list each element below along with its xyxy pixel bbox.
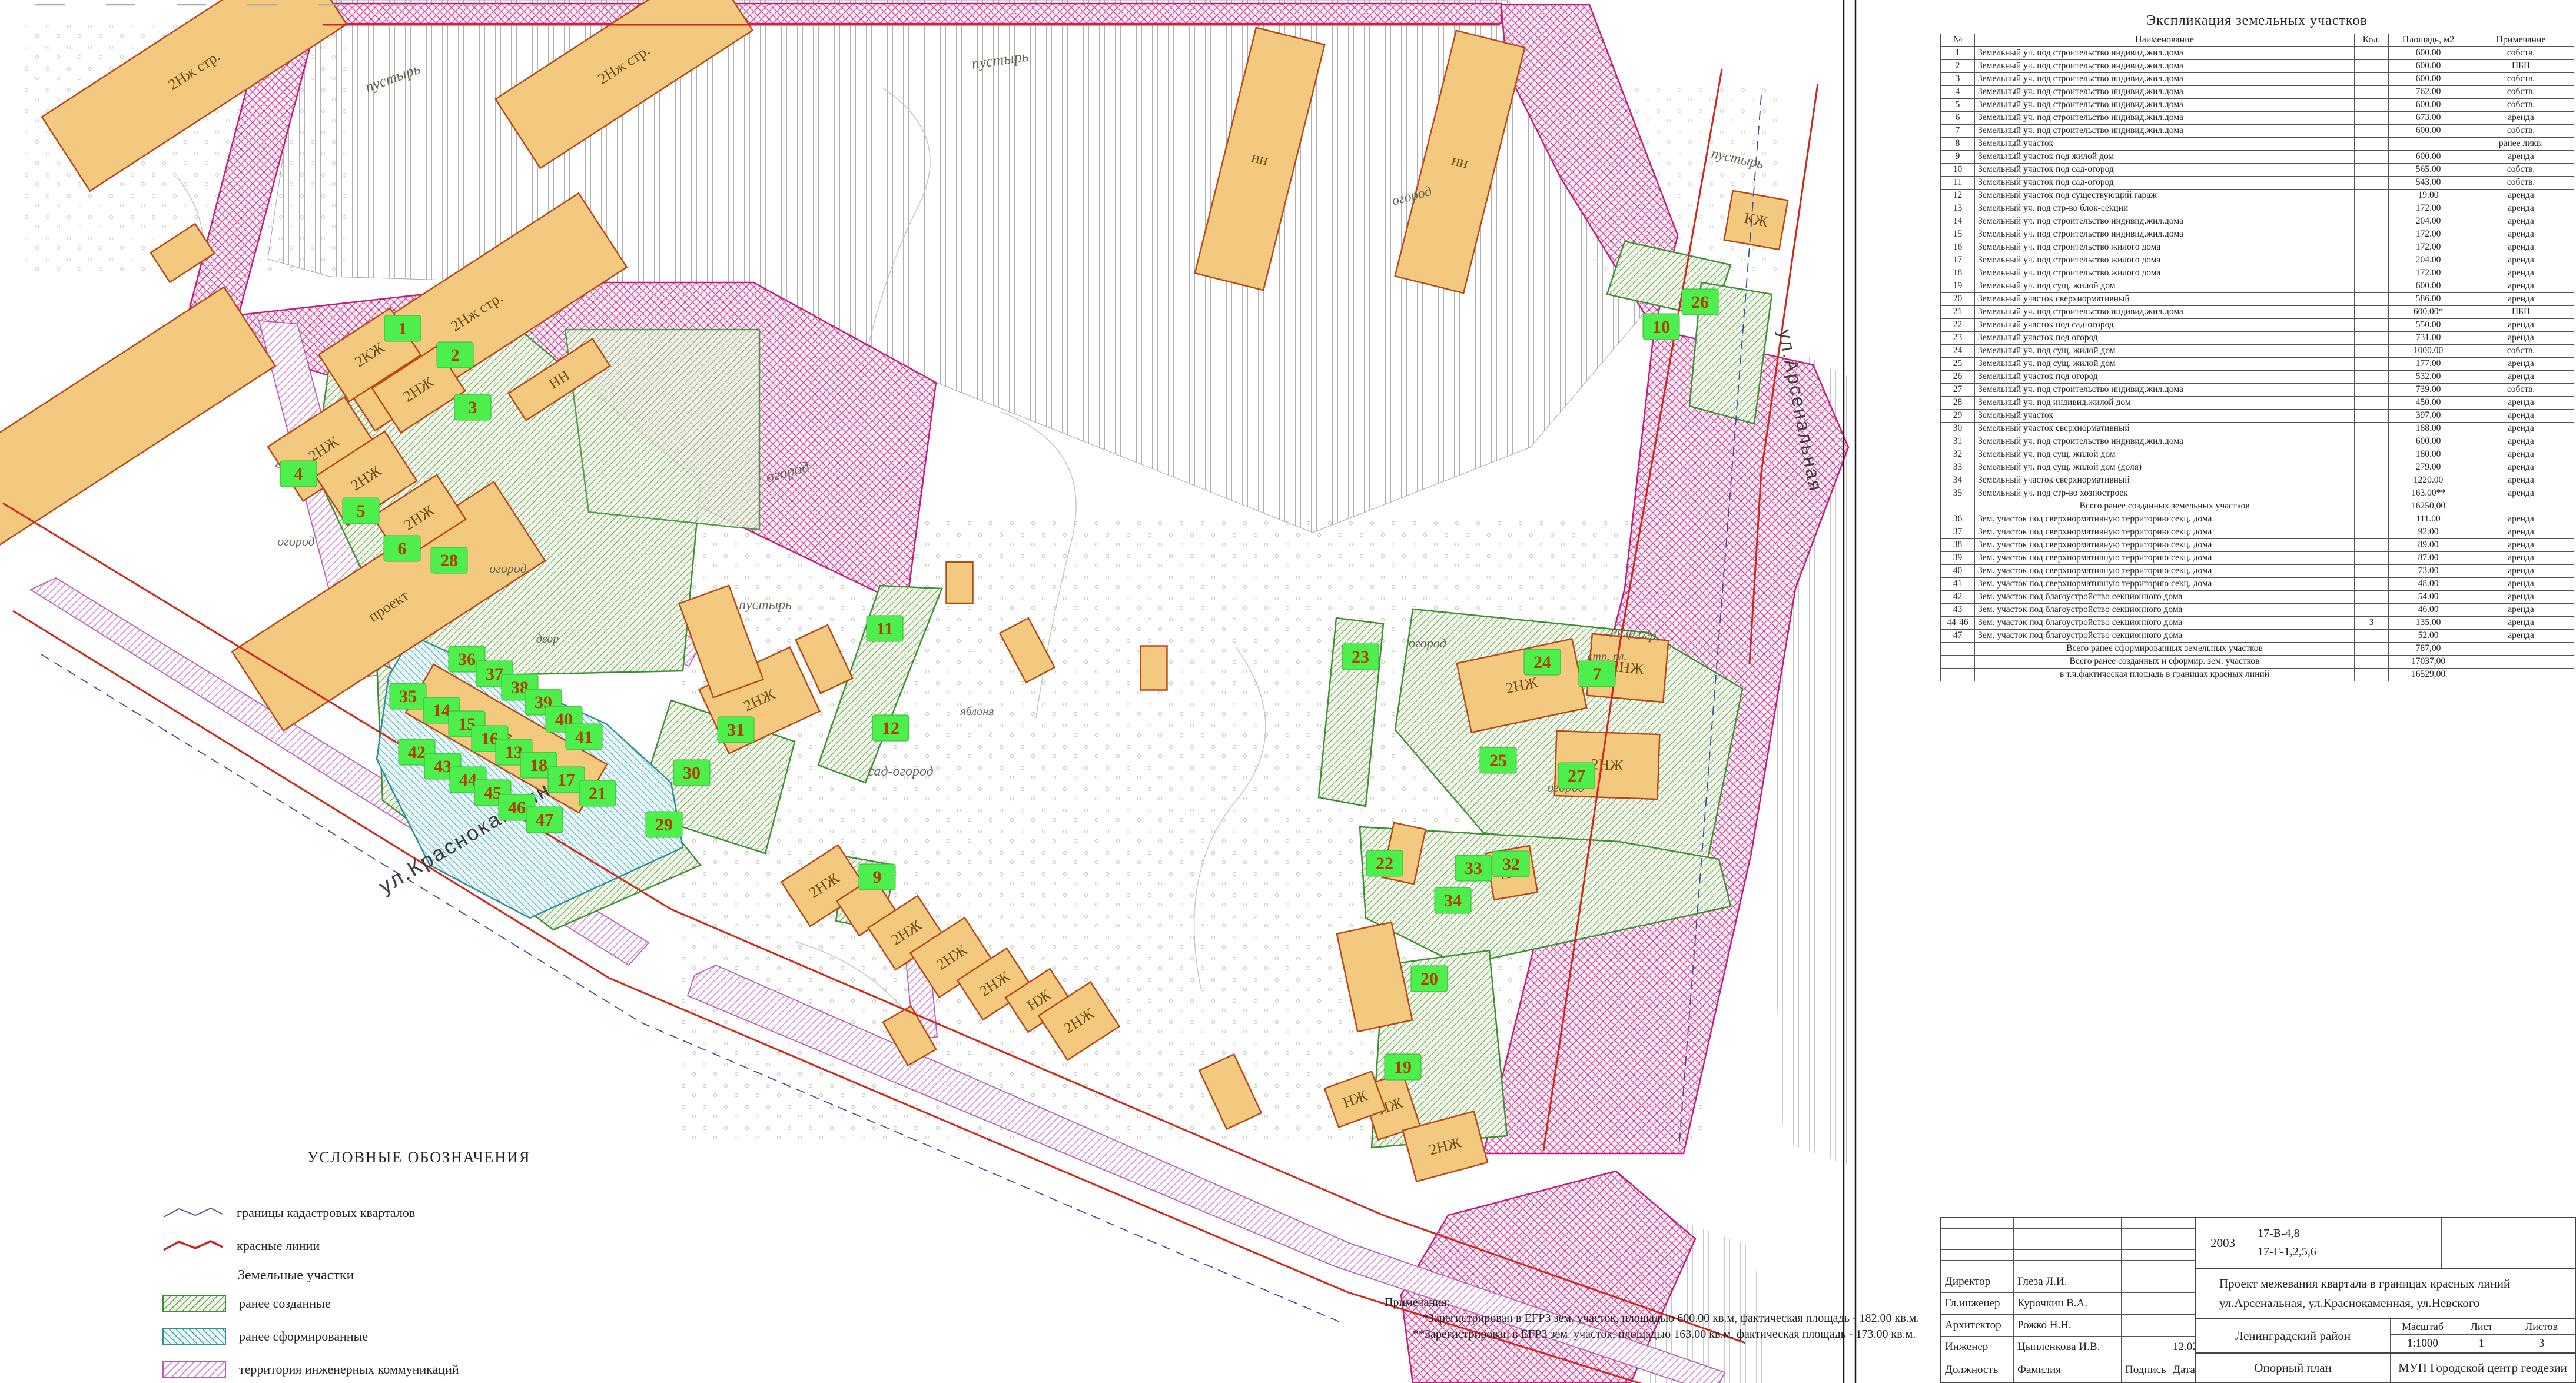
parcel-marker: 47: [526, 807, 563, 833]
topo-label: яблоня: [960, 705, 994, 718]
doc-number-2: 17-Г-1,2,5,6: [2258, 1245, 2434, 1259]
parcel-marker: 25: [1480, 747, 1516, 773]
table-row: 5Земельный уч. под строительство индивид…: [1941, 99, 2574, 112]
legend-subheader: Земельные участки: [238, 1268, 692, 1288]
note-line-2: **Зарегистрирован в ЕГРЗ зем. участок, п…: [1385, 1327, 1919, 1342]
table-row: 8Земельный участокранее ликв.: [1941, 138, 2574, 151]
parcel-number: 14: [433, 701, 450, 720]
table-row: 13Земельный уч. под стр-во блок-секции17…: [1941, 202, 2574, 215]
topo-label: огород: [277, 534, 314, 548]
legend-item-created: ранее созданные: [162, 1292, 692, 1315]
parcel-number: 6: [398, 539, 407, 558]
table-row: 17Земельный уч. под строительство жилого…: [1941, 254, 2574, 267]
legend-label: границы кадастровых кварталов: [237, 1205, 415, 1221]
parcel-marker: 41: [566, 724, 602, 750]
parcel-number: 43: [434, 757, 452, 776]
building: [1141, 646, 1167, 690]
parcel-number: 29: [655, 815, 673, 835]
notes: Примечания: *Зарегистрирован в ЕГРЗ зем.…: [1385, 1295, 1919, 1342]
table-row: 36Зем. участок под сверхнормативную терр…: [1941, 513, 2574, 526]
table-row: 42Зем. участок под благоустройство секци…: [1941, 591, 2574, 604]
parcel-number: 23: [1352, 647, 1369, 667]
footer-role: Должность: [1941, 1358, 2014, 1382]
topo-label: сад-огород: [868, 764, 933, 779]
table-row: 20Земельный участок сверхнормативный586.…: [1941, 293, 2574, 306]
footer-name: Фамилия: [2014, 1358, 2122, 1382]
note-line-1: *Зарегистрирован в ЕГРЗ зем. участок, пл…: [1385, 1311, 1919, 1327]
project-line-2: ул.Арсенальная, ул.Краснокаменная, ул.Не…: [2219, 1296, 2575, 1311]
pink-hatch-swatch: [162, 1361, 226, 1378]
table-row: 12Земельный участок под существующий гар…: [1941, 190, 2574, 202]
stamp-district: Ленинградский район: [2196, 1319, 2391, 1352]
parcel-number: 18: [530, 756, 547, 775]
table-row: 19Земельный уч. под сущ. жилой дом600.00…: [1941, 280, 2574, 293]
stamp-empty-row: [1941, 1250, 2195, 1261]
topo-label: пустырь: [739, 597, 792, 613]
col-number: №: [1941, 34, 1975, 47]
red-line-icon: [162, 1238, 224, 1254]
stamp-staff-row: Гл.инженерКурочкин В.А.: [1941, 1293, 2195, 1315]
stamp-organization: МУП Городской центр геодезии: [2391, 1354, 2575, 1382]
drawing-sheet: 2Нж стр.2Нж стр.2Нж стр.проектннннННКЖ2К…: [0, 0, 2576, 1383]
parcel-marker: 32: [1493, 851, 1529, 877]
parcel-number: 24: [1533, 653, 1551, 672]
parcel-number: 9: [873, 867, 882, 887]
parcel-number: 37: [486, 664, 503, 684]
col-area: Площадь, м2: [2389, 34, 2468, 47]
stamp-blank-cell: [2442, 1218, 2575, 1268]
parcel-marker: 4: [280, 461, 317, 487]
sheets-label: Листов: [2508, 1319, 2575, 1335]
table-summary-row: Всего ранее созданных земельных участков…: [1941, 500, 2574, 513]
stamp-empty-row: [1941, 1218, 2195, 1229]
sheet-label: Лист: [2455, 1319, 2508, 1335]
parcel-number: 22: [1376, 854, 1393, 873]
parcel-marker: 19: [1385, 1054, 1421, 1080]
footer-sign: Подпись: [2122, 1358, 2169, 1382]
stamp-year: 2003: [2196, 1218, 2250, 1268]
table-row: 40Зем. участок под сверхнормативную терр…: [1941, 565, 2574, 578]
table-row: 21Земельный уч. под строительство индиви…: [1941, 306, 2574, 319]
table-row: 26Земельный участок под огород532.00арен…: [1941, 371, 2574, 384]
parcel-number: 21: [589, 784, 606, 803]
table-row: 29Земельный участок397.00аренда: [1941, 410, 2574, 423]
stamp-staff-row: АрхитекторРожко Н.Н.: [1941, 1315, 2195, 1337]
legend-label: ранее сформированные: [239, 1329, 368, 1344]
table-row: 22Земельный участок под сад-огород550.00…: [1941, 319, 2574, 332]
topo-label: огород: [489, 561, 526, 576]
cadastral-boundary-line-icon: [162, 1205, 224, 1221]
table-row: 23Земельный участок под огород731.00арен…: [1941, 332, 2574, 345]
table-row: 30Земельный участок сверхнормативный188.…: [1941, 423, 2574, 435]
table-row: 14Земельный уч. под строительство индиви…: [1941, 215, 2574, 228]
table-row: 37Зем. участок под сверхнормативную терр…: [1941, 526, 2574, 539]
table-row: 44-46Зем. участок под благоустройство се…: [1941, 617, 2574, 630]
table-row: 47Зем. участок под благоустройство секци…: [1941, 630, 2574, 643]
parcel-number: 25: [1489, 751, 1507, 770]
table-title: Экспликация земельных участков: [1940, 13, 2574, 29]
table-row: 10Земельный участок под сад-огород565.00…: [1941, 164, 2574, 177]
parcel-marker: 26: [1682, 289, 1718, 315]
parcel-number: 35: [399, 687, 417, 706]
topo-label: двор: [536, 633, 559, 646]
parcel-number: 19: [1394, 1058, 1412, 1077]
table-row: 15Земельный уч. под строительство индиви…: [1941, 228, 2574, 241]
legend-item-kadastr: границы кадастровых кварталов: [162, 1202, 692, 1224]
table-summary-row: Всего ранее созданных и сформир. зем. уч…: [1941, 656, 2574, 669]
parcel-number: 46: [508, 798, 526, 817]
parcel-number: 27: [1568, 766, 1585, 786]
stamp-empty-row: [1941, 1229, 2195, 1239]
table-row: 28Земельный уч. под индивид.жилой дом450…: [1941, 397, 2574, 410]
table-row: 6Земельный уч. под строительство индивид…: [1941, 112, 2574, 125]
table-row: 1Земельный уч. под строительство индивид…: [1941, 47, 2574, 60]
parcel-number: 32: [1502, 855, 1520, 874]
legend-title: УСЛОВНЫЕ ОБОЗНАЧЕНИЯ: [307, 1149, 692, 1166]
parcel-marker: 3: [454, 394, 491, 420]
parcel-marker: 27: [1558, 763, 1595, 789]
footer-date: Дата: [2169, 1358, 2195, 1382]
parcel-marker: 2: [437, 342, 473, 368]
parcel-number: 5: [357, 501, 366, 521]
parcel-number: 7: [1593, 664, 1602, 684]
table-row: 25Земельный уч. под сущ. жилой дом177.00…: [1941, 358, 2574, 371]
stamp-empty-row: [1941, 1239, 2195, 1250]
stamp-scale-grid: Масштаб Лист Листов 1:1000 1 3: [2391, 1319, 2575, 1352]
legend: УСЛОВНЫЕ ОБОЗНАЧЕНИЯ границы кадастровых…: [162, 1149, 692, 1383]
sheet-value: 1: [2455, 1335, 2508, 1352]
parcel-marker: 24: [1524, 649, 1561, 675]
parcel-number: 17: [557, 770, 575, 790]
topo-label: огород: [1409, 636, 1446, 650]
cyan-hatch-swatch: [162, 1328, 226, 1345]
table-summary-row: Всего ранее сформированных земельных уча…: [1941, 643, 2574, 656]
parcel-number: 2: [451, 345, 460, 365]
explication-table: Экспликация земельных участков № Наимено…: [1940, 13, 2574, 681]
parcel-marker: 9: [859, 864, 895, 890]
doc-number-1: 17-В-4,8: [2258, 1227, 2434, 1241]
parcel-marker: 29: [646, 812, 682, 837]
green-hatch-swatch: [162, 1295, 226, 1312]
parcel-number: 10: [1652, 317, 1670, 337]
parcel-marker: 30: [673, 760, 710, 786]
table-row: 4Земельный уч. под строительство индивид…: [1941, 86, 2574, 99]
table-row: 32Земельный уч. под сущ. жилой дом180.00…: [1941, 448, 2574, 461]
parcel-marker: 1: [384, 315, 421, 341]
stamp-empty-row: [1941, 1261, 2195, 1271]
parcel-number: 28: [440, 551, 458, 570]
parcel-number: 11: [877, 619, 893, 639]
parcel-marker: 33: [1455, 855, 1492, 881]
stamp-staff-row: ДиректорГлеза Л.И.: [1941, 1271, 2195, 1293]
parcel-marker: 21: [579, 780, 616, 806]
project-line-1: Проект межевания квартала в границах кра…: [2219, 1276, 2575, 1291]
parcel-marker: 31: [718, 717, 754, 743]
parcel-marker: 11: [867, 616, 903, 641]
parcel-number: 4: [294, 464, 303, 484]
legend-item-comm: территория инженерных коммуникаций: [162, 1358, 692, 1381]
parcel-number: 30: [683, 763, 701, 783]
building: [0, 287, 275, 549]
table-row: 27Земельный уч. под строительство индиви…: [1941, 384, 2574, 397]
parcel-number: 36: [458, 650, 476, 669]
table-row: 41Зем. участок под сверхнормативную терр…: [1941, 578, 2574, 591]
building: КЖ: [1724, 191, 1788, 250]
stamp-project-title: Проект межевания квартала в границах кра…: [2196, 1269, 2575, 1319]
parcel-number: 26: [1691, 292, 1709, 312]
table-row: 24Земельный уч. под сущ. жилой дом1000.0…: [1941, 345, 2574, 358]
stamp-doc-numbers: 17-В-4,8 17-Г-1,2,5,6: [2250, 1218, 2442, 1268]
parcel-number: 41: [575, 727, 593, 747]
col-qty: Кол.: [2355, 34, 2389, 47]
legend-label: красные линии: [237, 1238, 320, 1254]
table-row: 16Земельный уч. под строительство жилого…: [1941, 241, 2574, 254]
parcel-marker: 12: [872, 715, 909, 741]
legend-item-formed: ранее сформированные: [162, 1325, 692, 1348]
table-row: 39Зем. участок под сверхнормативную терр…: [1941, 552, 2574, 565]
stamp-plan-name: Опорный план: [2196, 1354, 2391, 1382]
scale-value: 1:1000: [2391, 1335, 2455, 1352]
legend-label: ранее созданные: [239, 1296, 331, 1311]
table-row: 7Земельный уч. под строительство индивид…: [1941, 125, 2574, 138]
notes-title: Примечания:: [1385, 1295, 1919, 1311]
parcel-marker: 6: [384, 536, 420, 561]
table-row: 38Зем. участок под сверхнормативную терр…: [1941, 539, 2574, 552]
parcel-marker: 35: [390, 683, 426, 709]
title-block: ДиректорГлеза Л.И.Гл.инженерКурочкин В.А…: [1940, 1217, 2576, 1383]
legend-label: территория инженерных коммуникаций: [239, 1362, 459, 1377]
table-row: 35Земельный уч. под стр-во хозпостроек16…: [1941, 487, 2574, 500]
table-row: 9Земельный участок под жилой дом600.00ар…: [1941, 151, 2574, 164]
parcel-number: 1: [399, 319, 407, 338]
parcel-marker: 7: [1579, 661, 1615, 687]
parcel-number: 3: [469, 398, 477, 417]
parcel-number: 42: [408, 743, 426, 762]
col-name: Наименование: [1975, 34, 2355, 47]
table-row: 3Земельный уч. под строительство индивид…: [1941, 73, 2574, 86]
table-row: 34Земельный участок сверхнормативный1220…: [1941, 474, 2574, 487]
sheets-value: 3: [2508, 1335, 2575, 1352]
parcel-number: 34: [1444, 891, 1462, 910]
parcel-marker: 22: [1366, 850, 1403, 876]
parcel-marker: 23: [1342, 644, 1379, 670]
table-row: 33Земельный уч. под сущ. жилой дом (доля…: [1941, 461, 2574, 474]
parcel-number: 20: [1420, 969, 1438, 989]
building: [947, 562, 973, 603]
scale-label: Масштаб: [2391, 1319, 2455, 1335]
parcel-number: 31: [727, 720, 745, 740]
stamp-footer-row: Должность Фамилия Подпись Дата: [1941, 1358, 2195, 1382]
table-row: 18Земельный уч. под строительство жилого…: [1941, 267, 2574, 280]
table-row: 2Земельный уч. под строительство индивид…: [1941, 60, 2574, 73]
table-row: 31Земельный уч. под строительство индиви…: [1941, 435, 2574, 448]
parcel-marker: 20: [1411, 966, 1448, 992]
parcel-marker: 10: [1643, 314, 1679, 340]
table-row: 11Земельный участок под сад-огород543.00…: [1941, 177, 2574, 190]
parcel-marker: 34: [1435, 887, 1471, 913]
parcel-marker: 28: [431, 547, 467, 573]
col-note: Примечание: [2468, 34, 2574, 47]
parcel-number: 47: [536, 810, 553, 830]
stamp-staff-row: ИнженерЦыпленкова И.В.12.02.03: [1941, 1337, 2195, 1358]
table-row: 43Зем. участок под благоустройство секци…: [1941, 604, 2574, 617]
parcel-number: 33: [1465, 859, 1482, 878]
parcel-marker: 5: [343, 498, 379, 524]
table-summary-row: в т.ч.фактическая площадь в границах кра…: [1941, 669, 2574, 681]
parcel-number: 12: [882, 719, 899, 738]
building-label: 2НЖ: [1591, 756, 1624, 774]
table-header-row: № Наименование Кол. Площадь, м2 Примечан…: [1941, 34, 2574, 47]
legend-item-redlines: красные линии: [162, 1235, 692, 1257]
